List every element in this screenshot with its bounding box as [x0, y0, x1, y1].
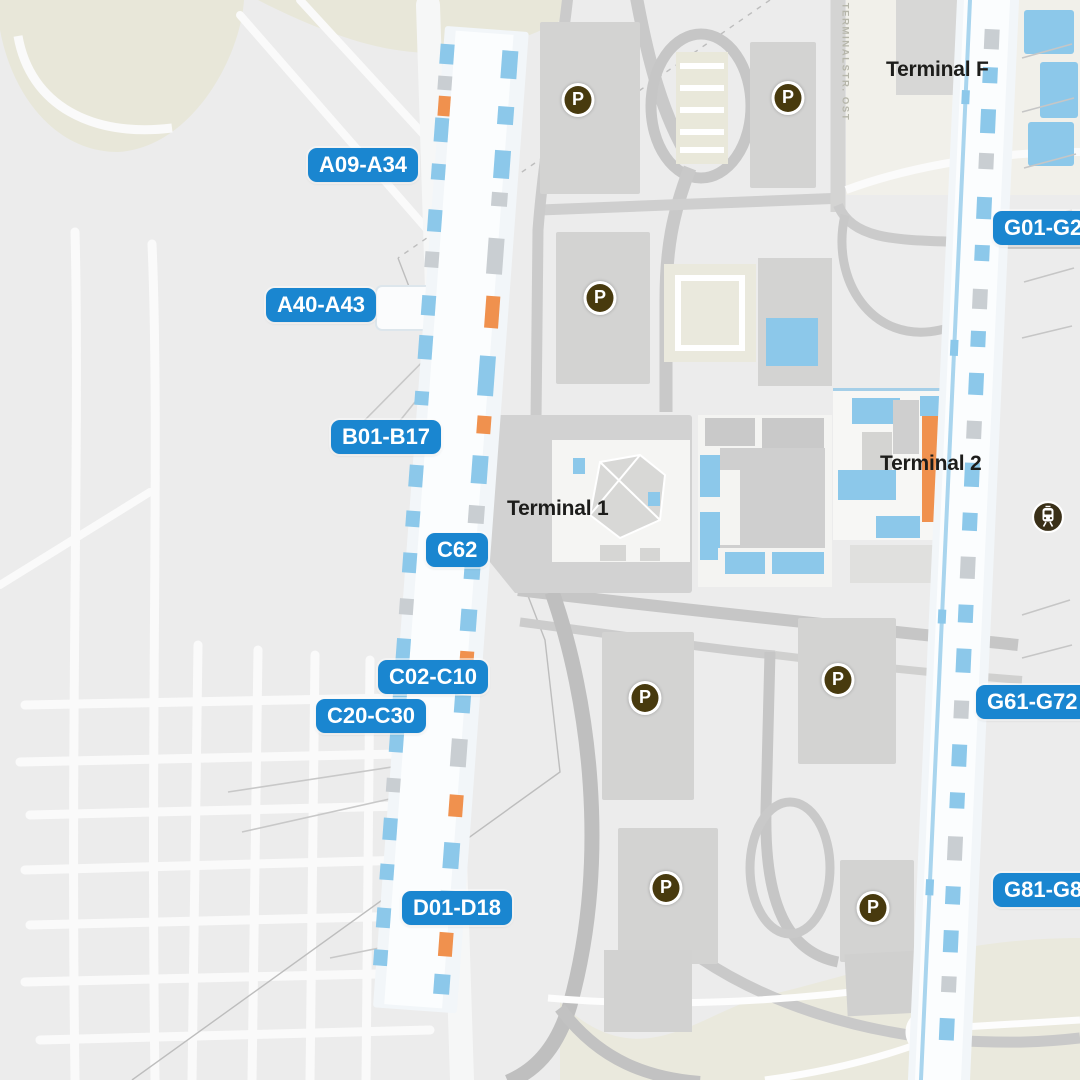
gate-range-badge[interactable]: A40-A43: [266, 288, 376, 322]
train-station-icon[interactable]: [1032, 501, 1065, 534]
parking-icon[interactable]: P: [650, 871, 683, 905]
central-plaza-building: [698, 415, 832, 587]
terminal-label: Terminal 1: [507, 497, 608, 521]
parking-icon[interactable]: P: [822, 663, 855, 697]
parking-icon-letter: P: [832, 669, 844, 690]
parking-icon-letter: P: [594, 287, 606, 308]
airport-map-canvas[interactable]: TERMINALSTR. OST Terminal FTerminal 1Ter…: [0, 0, 1080, 1080]
gate-range-badge[interactable]: B01-B17: [331, 420, 441, 454]
parking-icon[interactable]: P: [629, 681, 662, 715]
parking-icon-letter: P: [572, 89, 584, 110]
parking-icon-letter: P: [639, 687, 651, 708]
parking-icon[interactable]: P: [857, 891, 890, 925]
gate-range-badge[interactable]: D01-D18: [402, 891, 512, 925]
parking-icon[interactable]: P: [772, 81, 805, 115]
map-background: [0, 0, 1080, 1080]
train-glyph: [1032, 501, 1065, 534]
gate-range-badge[interactable]: G01-G28: [993, 211, 1080, 245]
parking-icon-letter: P: [867, 897, 879, 918]
street-label-terminalstrasse-ost: TERMINALSTR. OST: [840, 3, 851, 122]
gate-range-badge[interactable]: G61-G72: [976, 685, 1080, 719]
parking-icon[interactable]: P: [562, 83, 595, 117]
gate-range-badge[interactable]: C62: [426, 533, 488, 567]
parking-icon[interactable]: P: [584, 281, 617, 315]
gate-range-badge[interactable]: A09-A34: [308, 148, 418, 182]
terminal-label: Terminal F: [886, 58, 989, 82]
gate-range-badge[interactable]: G81-G88: [993, 873, 1080, 907]
parking-icon-letter: P: [782, 87, 794, 108]
parking-icon-letter: P: [660, 877, 672, 898]
gate-range-badge[interactable]: C20-C30: [316, 699, 426, 733]
gate-range-badge[interactable]: C02-C10: [378, 660, 488, 694]
terminal-label: Terminal 2: [880, 452, 981, 476]
